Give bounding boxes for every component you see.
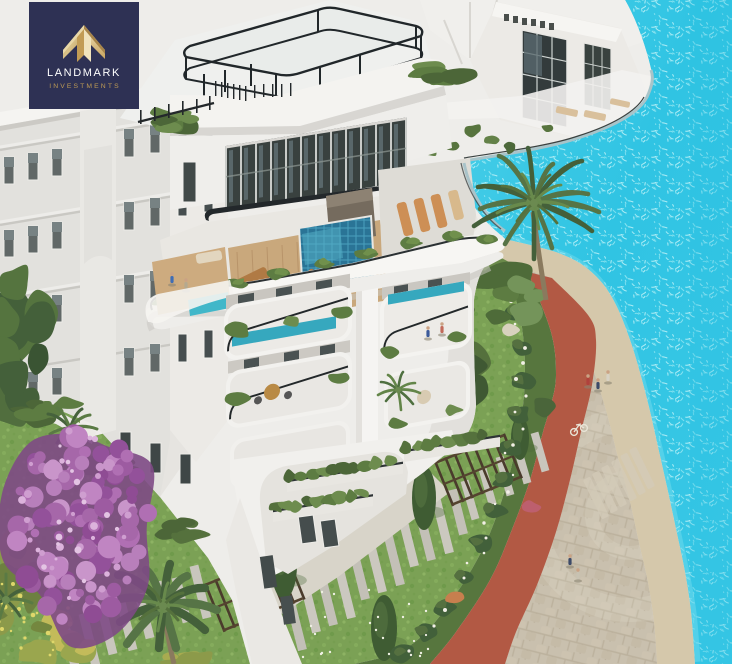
svg-text:LANDMARK: LANDMARK (47, 67, 121, 79)
svg-text:INVESTMENTS: INVESTMENTS (49, 83, 120, 90)
